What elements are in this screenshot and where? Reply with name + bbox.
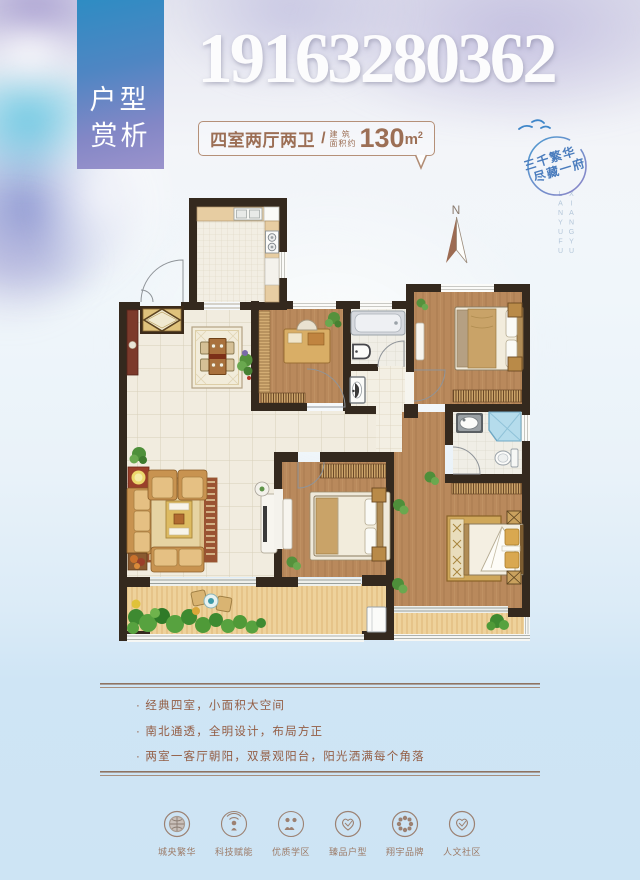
svg-text:城央繁华: 城央繁华 <box>158 846 196 857</box>
svg-text:优质学区: 优质学区 <box>272 846 310 857</box>
svg-text:翔宇品牌: 翔宇品牌 <box>386 846 424 857</box>
svg-text:科技赋能: 科技赋能 <box>215 846 253 857</box>
svg-text:人文社区: 人文社区 <box>443 846 481 857</box>
svg-text:N: N <box>452 203 461 217</box>
svg-text:臻品户型: 臻品户型 <box>329 846 367 857</box>
